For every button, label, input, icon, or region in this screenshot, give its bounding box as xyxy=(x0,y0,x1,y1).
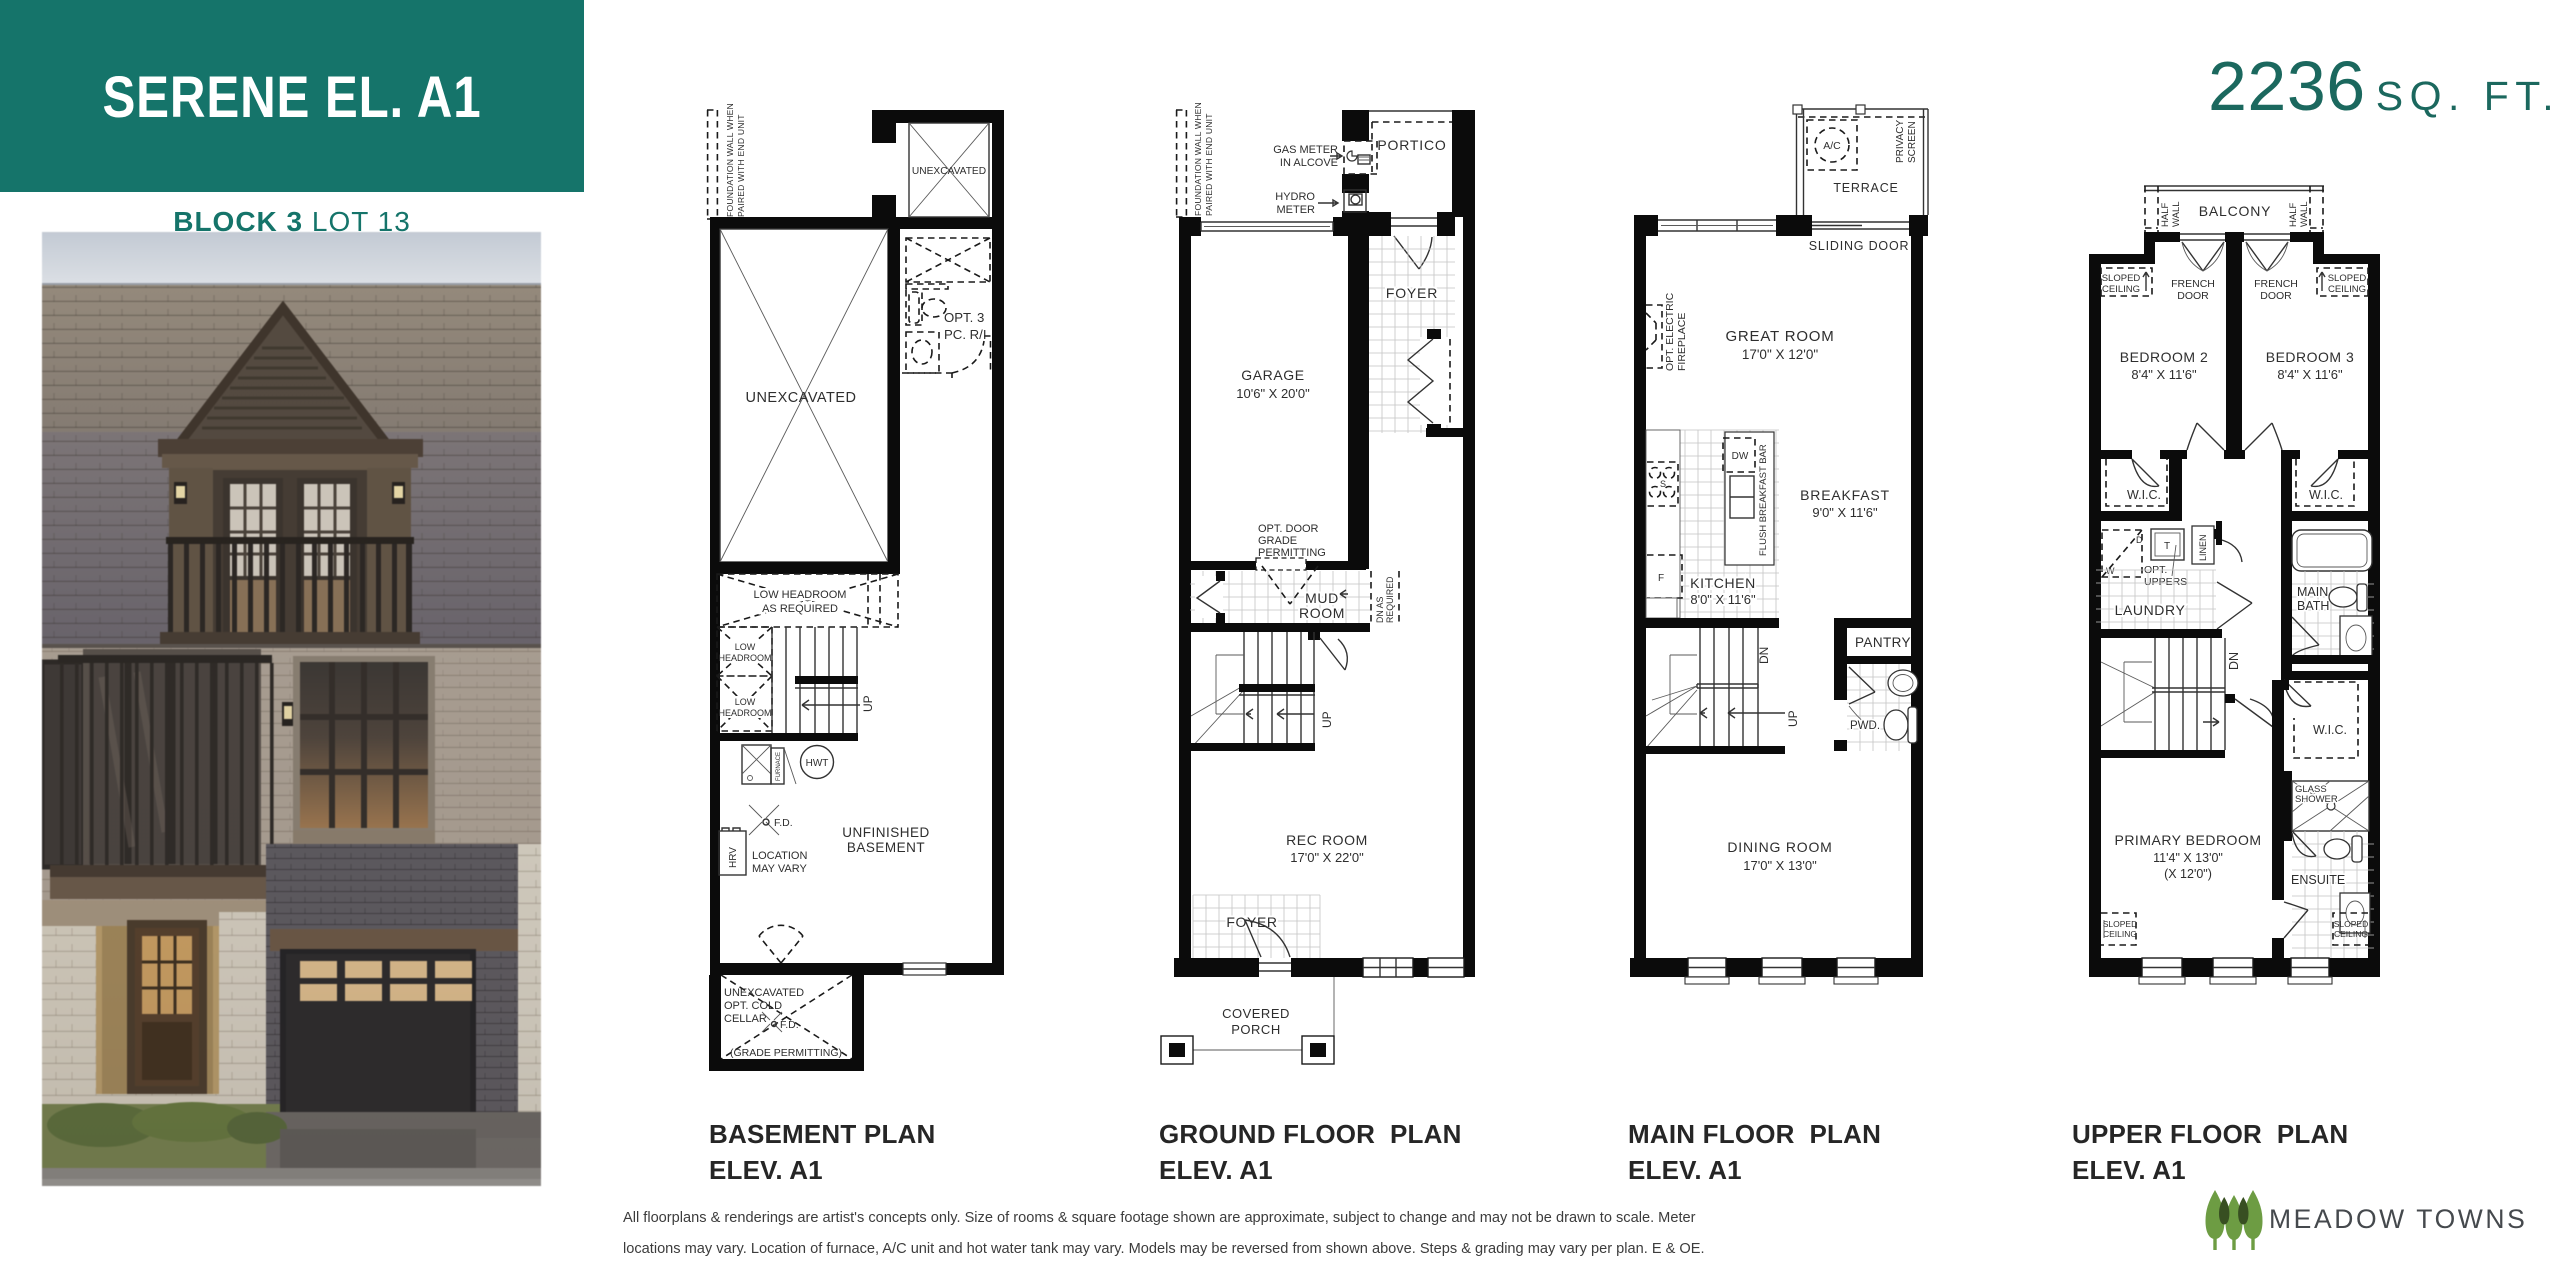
svg-text:MUD: MUD xyxy=(1305,590,1339,606)
svg-text:F.D.: F.D. xyxy=(774,817,793,829)
svg-text:9'0" X 11'6": 9'0" X 11'6" xyxy=(1812,505,1878,520)
svg-text:FOUNDATION WALL WHEN: FOUNDATION WALL WHEN xyxy=(725,103,735,217)
svg-text:W.I.C.: W.I.C. xyxy=(2313,723,2347,737)
svg-text:MEADOW TOWNS: MEADOW TOWNS xyxy=(2269,1204,2527,1234)
svg-text:GRADE: GRADE xyxy=(1258,535,1297,547)
svg-text:FURNACE: FURNACE xyxy=(776,752,782,781)
svg-text:PANTRY: PANTRY xyxy=(1855,635,1911,650)
svg-text:DINING ROOM: DINING ROOM xyxy=(1727,839,1832,855)
svg-text:HYDRO: HYDRO xyxy=(1275,191,1315,203)
svg-text:(X 12'0"): (X 12'0") xyxy=(2164,867,2212,881)
svg-text:DN: DN xyxy=(2227,652,2241,670)
svg-text:W: W xyxy=(2106,566,2115,576)
svg-text:REC ROOM: REC ROOM xyxy=(1286,832,1368,848)
svg-text:OPT. ELECTRIC: OPT. ELECTRIC xyxy=(1664,292,1676,371)
svg-text:PRIMARY BEDROOM: PRIMARY BEDROOM xyxy=(2114,832,2261,848)
svg-text:UPPERS: UPPERS xyxy=(2144,576,2187,588)
svg-text:FIREPLACE: FIREPLACE xyxy=(1676,313,1688,371)
svg-text:WALL: WALL xyxy=(2299,201,2310,227)
svg-text:HWT: HWT xyxy=(806,758,829,769)
svg-text:MAIN: MAIN xyxy=(2297,585,2328,599)
svg-text:ENSUITE: ENSUITE xyxy=(2291,873,2345,887)
svg-text:17'0" X 13'0": 17'0" X 13'0" xyxy=(1743,858,1817,873)
svg-text:F.D.: F.D. xyxy=(780,1019,799,1031)
svg-text:PRIVACY: PRIVACY xyxy=(1895,120,1906,163)
svg-text:DN AS: DN AS xyxy=(1375,596,1385,623)
svg-text:GARAGE: GARAGE xyxy=(1241,367,1305,383)
svg-text:OPT. COLD: OPT. COLD xyxy=(724,1000,782,1012)
svg-text:HEADROOM: HEADROOM xyxy=(718,653,771,663)
svg-text:LOW: LOW xyxy=(735,642,756,652)
svg-text:FLUSH BREAKFAST BAR: FLUSH BREAKFAST BAR xyxy=(1758,444,1769,556)
svg-text:HALF: HALF xyxy=(2160,203,2171,227)
svg-text:PWD.: PWD. xyxy=(1850,720,1880,732)
svg-text:SLOPED: SLOPED xyxy=(2102,273,2141,284)
svg-text:HRV: HRV xyxy=(728,847,739,868)
svg-text:8'4" X 11'6": 8'4" X 11'6" xyxy=(2131,367,2197,382)
svg-text:UP: UP xyxy=(861,695,875,712)
svg-text:LAUNDRY: LAUNDRY xyxy=(2115,602,2186,618)
svg-text:KITCHEN: KITCHEN xyxy=(1690,575,1756,591)
svg-text:CEILING: CEILING xyxy=(2328,284,2366,295)
svg-text:FRENCH: FRENCH xyxy=(2254,278,2298,290)
svg-text:WALL: WALL xyxy=(2171,201,2182,227)
svg-text:F: F xyxy=(1658,573,1664,584)
svg-text:UP: UP xyxy=(1786,710,1800,727)
svg-text:BALCONY: BALCONY xyxy=(2199,203,2272,219)
svg-text:(GRADE PERMITTING): (GRADE PERMITTING) xyxy=(730,1047,842,1059)
svg-text:UNEXCAVATED: UNEXCAVATED xyxy=(912,166,986,177)
svg-text:8'0" X 11'6": 8'0" X 11'6" xyxy=(1690,592,1756,607)
svg-text:METER: METER xyxy=(1277,204,1316,216)
svg-text:11'4" X 13'0": 11'4" X 13'0" xyxy=(2153,851,2223,865)
svg-text:GREAT ROOM: GREAT ROOM xyxy=(1725,328,1834,345)
svg-text:BREAKFAST: BREAKFAST xyxy=(1800,487,1890,503)
svg-text:IN ALCOVE: IN ALCOVE xyxy=(1280,157,1338,169)
svg-text:LOW HEADROOM: LOW HEADROOM xyxy=(754,589,847,601)
svg-text:DOOR: DOOR xyxy=(2260,290,2292,302)
svg-text:10'6" X 20'0": 10'6" X 20'0" xyxy=(1236,386,1310,401)
svg-text:PORTICO: PORTICO xyxy=(1377,137,1446,153)
svg-text:SCREEN: SCREEN xyxy=(1907,121,1918,163)
svg-text:TERRACE: TERRACE xyxy=(1833,181,1898,195)
svg-text:W.I.C.: W.I.C. xyxy=(2309,488,2343,502)
svg-text:OPT. DOOR: OPT. DOOR xyxy=(1258,523,1319,535)
svg-text:8'4" X 11'6": 8'4" X 11'6" xyxy=(2277,367,2343,382)
svg-text:PORCH: PORCH xyxy=(1231,1022,1280,1037)
svg-text:PERMITTING: PERMITTING xyxy=(1258,547,1326,559)
svg-text:SLOPED: SLOPED xyxy=(2328,273,2367,284)
svg-text:W.I.C.: W.I.C. xyxy=(2127,488,2161,502)
svg-text:UP: UP xyxy=(1320,711,1334,728)
svg-text:S: S xyxy=(1660,479,1666,489)
svg-text:CEILING: CEILING xyxy=(2103,929,2137,939)
svg-text:D: D xyxy=(2136,535,2143,545)
svg-text:HEADROOM: HEADROOM xyxy=(718,708,771,718)
svg-text:UNEXCAVATED: UNEXCAVATED xyxy=(724,987,804,999)
svg-text:CELLAR: CELLAR xyxy=(724,1013,767,1025)
svg-text:LINEN: LINEN xyxy=(2198,534,2208,561)
svg-text:CEILING: CEILING xyxy=(2102,284,2140,295)
svg-text:LOCATION: LOCATION xyxy=(752,850,807,862)
svg-text:PAIRED WITH END UNIT: PAIRED WITH END UNIT xyxy=(736,114,746,217)
svg-text:CEILING: CEILING xyxy=(2334,929,2368,939)
svg-text:BATH: BATH xyxy=(2297,599,2329,613)
svg-text:HALF: HALF xyxy=(2288,203,2299,227)
svg-text:GAS METER: GAS METER xyxy=(1273,144,1338,156)
svg-text:UNEXCAVATED: UNEXCAVATED xyxy=(745,390,856,406)
svg-text:DN: DN xyxy=(1757,647,1771,664)
svg-text:REQUIRED: REQUIRED xyxy=(1385,577,1395,623)
svg-text:SLOPED: SLOPED xyxy=(2103,919,2138,929)
svg-text:BEDROOM 2: BEDROOM 2 xyxy=(2120,349,2209,365)
svg-text:AS REQUIRED: AS REQUIRED xyxy=(762,603,838,615)
svg-text:BEDROOM 3: BEDROOM 3 xyxy=(2266,349,2355,365)
svg-text:OPT. 3: OPT. 3 xyxy=(944,310,984,325)
svg-text:FRENCH: FRENCH xyxy=(2171,278,2215,290)
svg-text:ROOM: ROOM xyxy=(1299,605,1345,621)
svg-text:MAY VARY: MAY VARY xyxy=(752,863,807,875)
svg-text:17'0" X 22'0": 17'0" X 22'0" xyxy=(1290,850,1364,865)
svg-text:17'0" X 12'0": 17'0" X 12'0" xyxy=(1742,347,1819,362)
svg-text:T: T xyxy=(2164,541,2170,552)
svg-text:PC. R/I: PC. R/I xyxy=(944,327,987,342)
svg-text:SHOWER: SHOWER xyxy=(2295,794,2338,805)
svg-text:FOYER: FOYER xyxy=(1386,285,1438,301)
svg-text:PAIRED WITH END UNIT: PAIRED WITH END UNIT xyxy=(1204,113,1214,216)
svg-text:DW: DW xyxy=(1732,451,1749,462)
svg-text:LOW: LOW xyxy=(735,697,756,707)
svg-text:SLOPED: SLOPED xyxy=(2334,919,2369,929)
svg-text:SLIDING DOOR: SLIDING DOOR xyxy=(1809,239,1910,253)
svg-text:UNFINISHED: UNFINISHED xyxy=(842,825,930,840)
svg-text:COVERED: COVERED xyxy=(1222,1006,1290,1021)
svg-text:BASEMENT: BASEMENT xyxy=(847,840,925,855)
svg-text:DOOR: DOOR xyxy=(2177,290,2209,302)
svg-text:FOUNDATION WALL WHEN: FOUNDATION WALL WHEN xyxy=(1193,102,1203,216)
svg-text:A/C: A/C xyxy=(1823,140,1841,152)
